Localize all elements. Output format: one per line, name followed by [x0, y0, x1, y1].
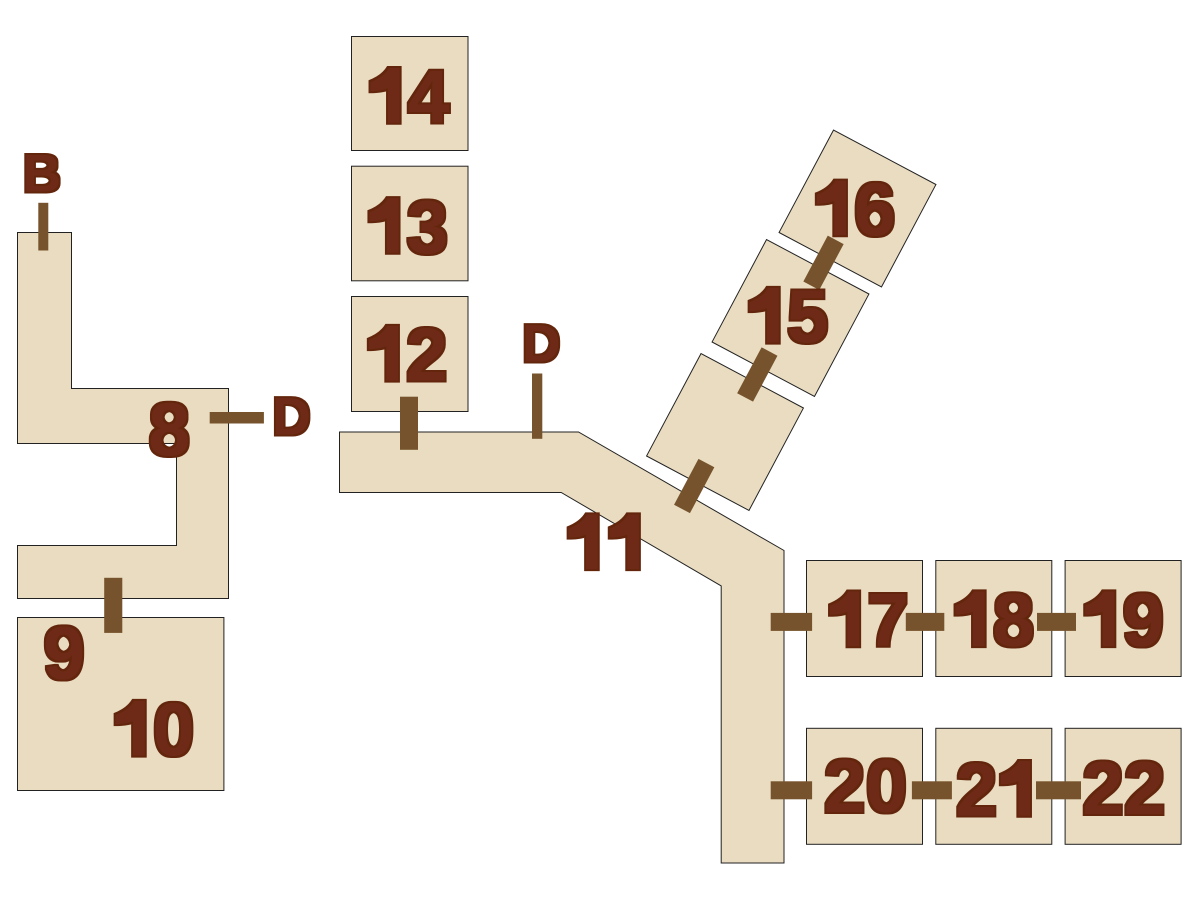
svg-text:8: 8 [148, 388, 190, 472]
svg-text:22: 22 [1082, 746, 1165, 830]
svg-text:D: D [522, 315, 560, 374]
svg-text:8: 8 [993, 578, 1035, 662]
svg-text:7: 7 [867, 578, 909, 662]
svg-text:4: 4 [408, 55, 450, 139]
svg-text:20: 20 [824, 744, 907, 828]
svg-text:0: 0 [153, 688, 195, 772]
svg-text:2: 2 [406, 313, 448, 397]
svg-text:D: D [272, 388, 310, 447]
svg-text:2: 2 [956, 748, 998, 832]
svg-text:9: 9 [43, 611, 85, 695]
svg-text:9: 9 [1122, 578, 1164, 662]
svg-text:B: B [23, 145, 61, 204]
svg-text:3: 3 [407, 185, 449, 269]
svg-text:6: 6 [854, 167, 896, 251]
svg-text:5: 5 [787, 275, 829, 359]
